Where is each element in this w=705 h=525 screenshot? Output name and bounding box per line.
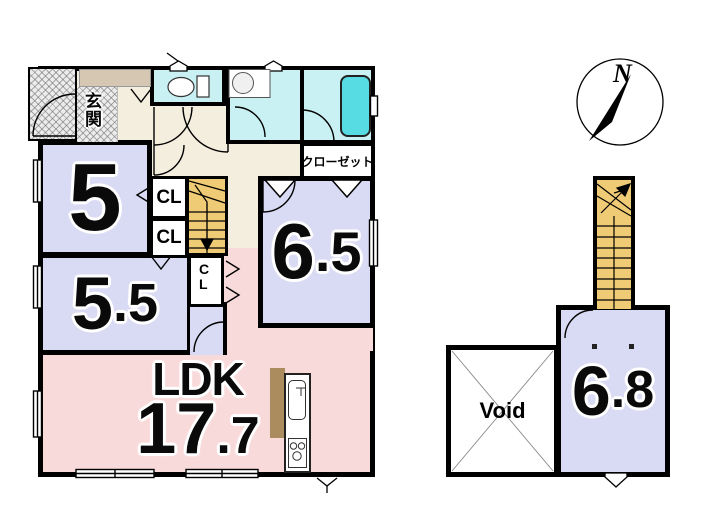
- entrance-label: 玄関: [85, 93, 103, 129]
- toilet-icon: [168, 76, 209, 97]
- bedroom-6-8-size: 6.8: [556, 305, 670, 477]
- size-dec: .7: [216, 407, 259, 465]
- size-int: 5: [72, 270, 113, 338]
- bedroom-5-size: 5: [38, 140, 152, 257]
- stairs-down-icon: [189, 181, 225, 253]
- cl-lower-label: CL: [150, 218, 188, 258]
- size-dec: .5: [113, 279, 158, 329]
- north-label: N: [612, 59, 633, 88]
- sink-icon: [229, 70, 270, 98]
- size-int: 6: [271, 216, 314, 288]
- closet-room-label: クローゼット: [300, 142, 375, 180]
- void-label: Void: [446, 345, 559, 477]
- size-dec: .5: [315, 226, 362, 278]
- ldk-size: 17.7: [58, 396, 338, 462]
- compass-icon: N: [577, 59, 663, 145]
- stairs-up-icon: [597, 184, 631, 309]
- door-mark: [317, 478, 337, 493]
- size-int: 17: [136, 389, 216, 469]
- ldk-label-block: LDK 17.7: [58, 358, 338, 463]
- bedroom-6-5-size: 6.5: [258, 176, 375, 328]
- size-dec: .8: [611, 367, 654, 415]
- floor-plan-canvas: N 玄関 クローゼット CL CL CL 5 5.5 6.5 LDK 17.7 …: [0, 0, 705, 525]
- cl-upper-label: CL: [150, 176, 188, 219]
- bedroom-5-5-size: 5.5: [38, 253, 192, 355]
- cl-side-label: CL: [199, 262, 214, 291]
- size-int: 6: [572, 359, 611, 423]
